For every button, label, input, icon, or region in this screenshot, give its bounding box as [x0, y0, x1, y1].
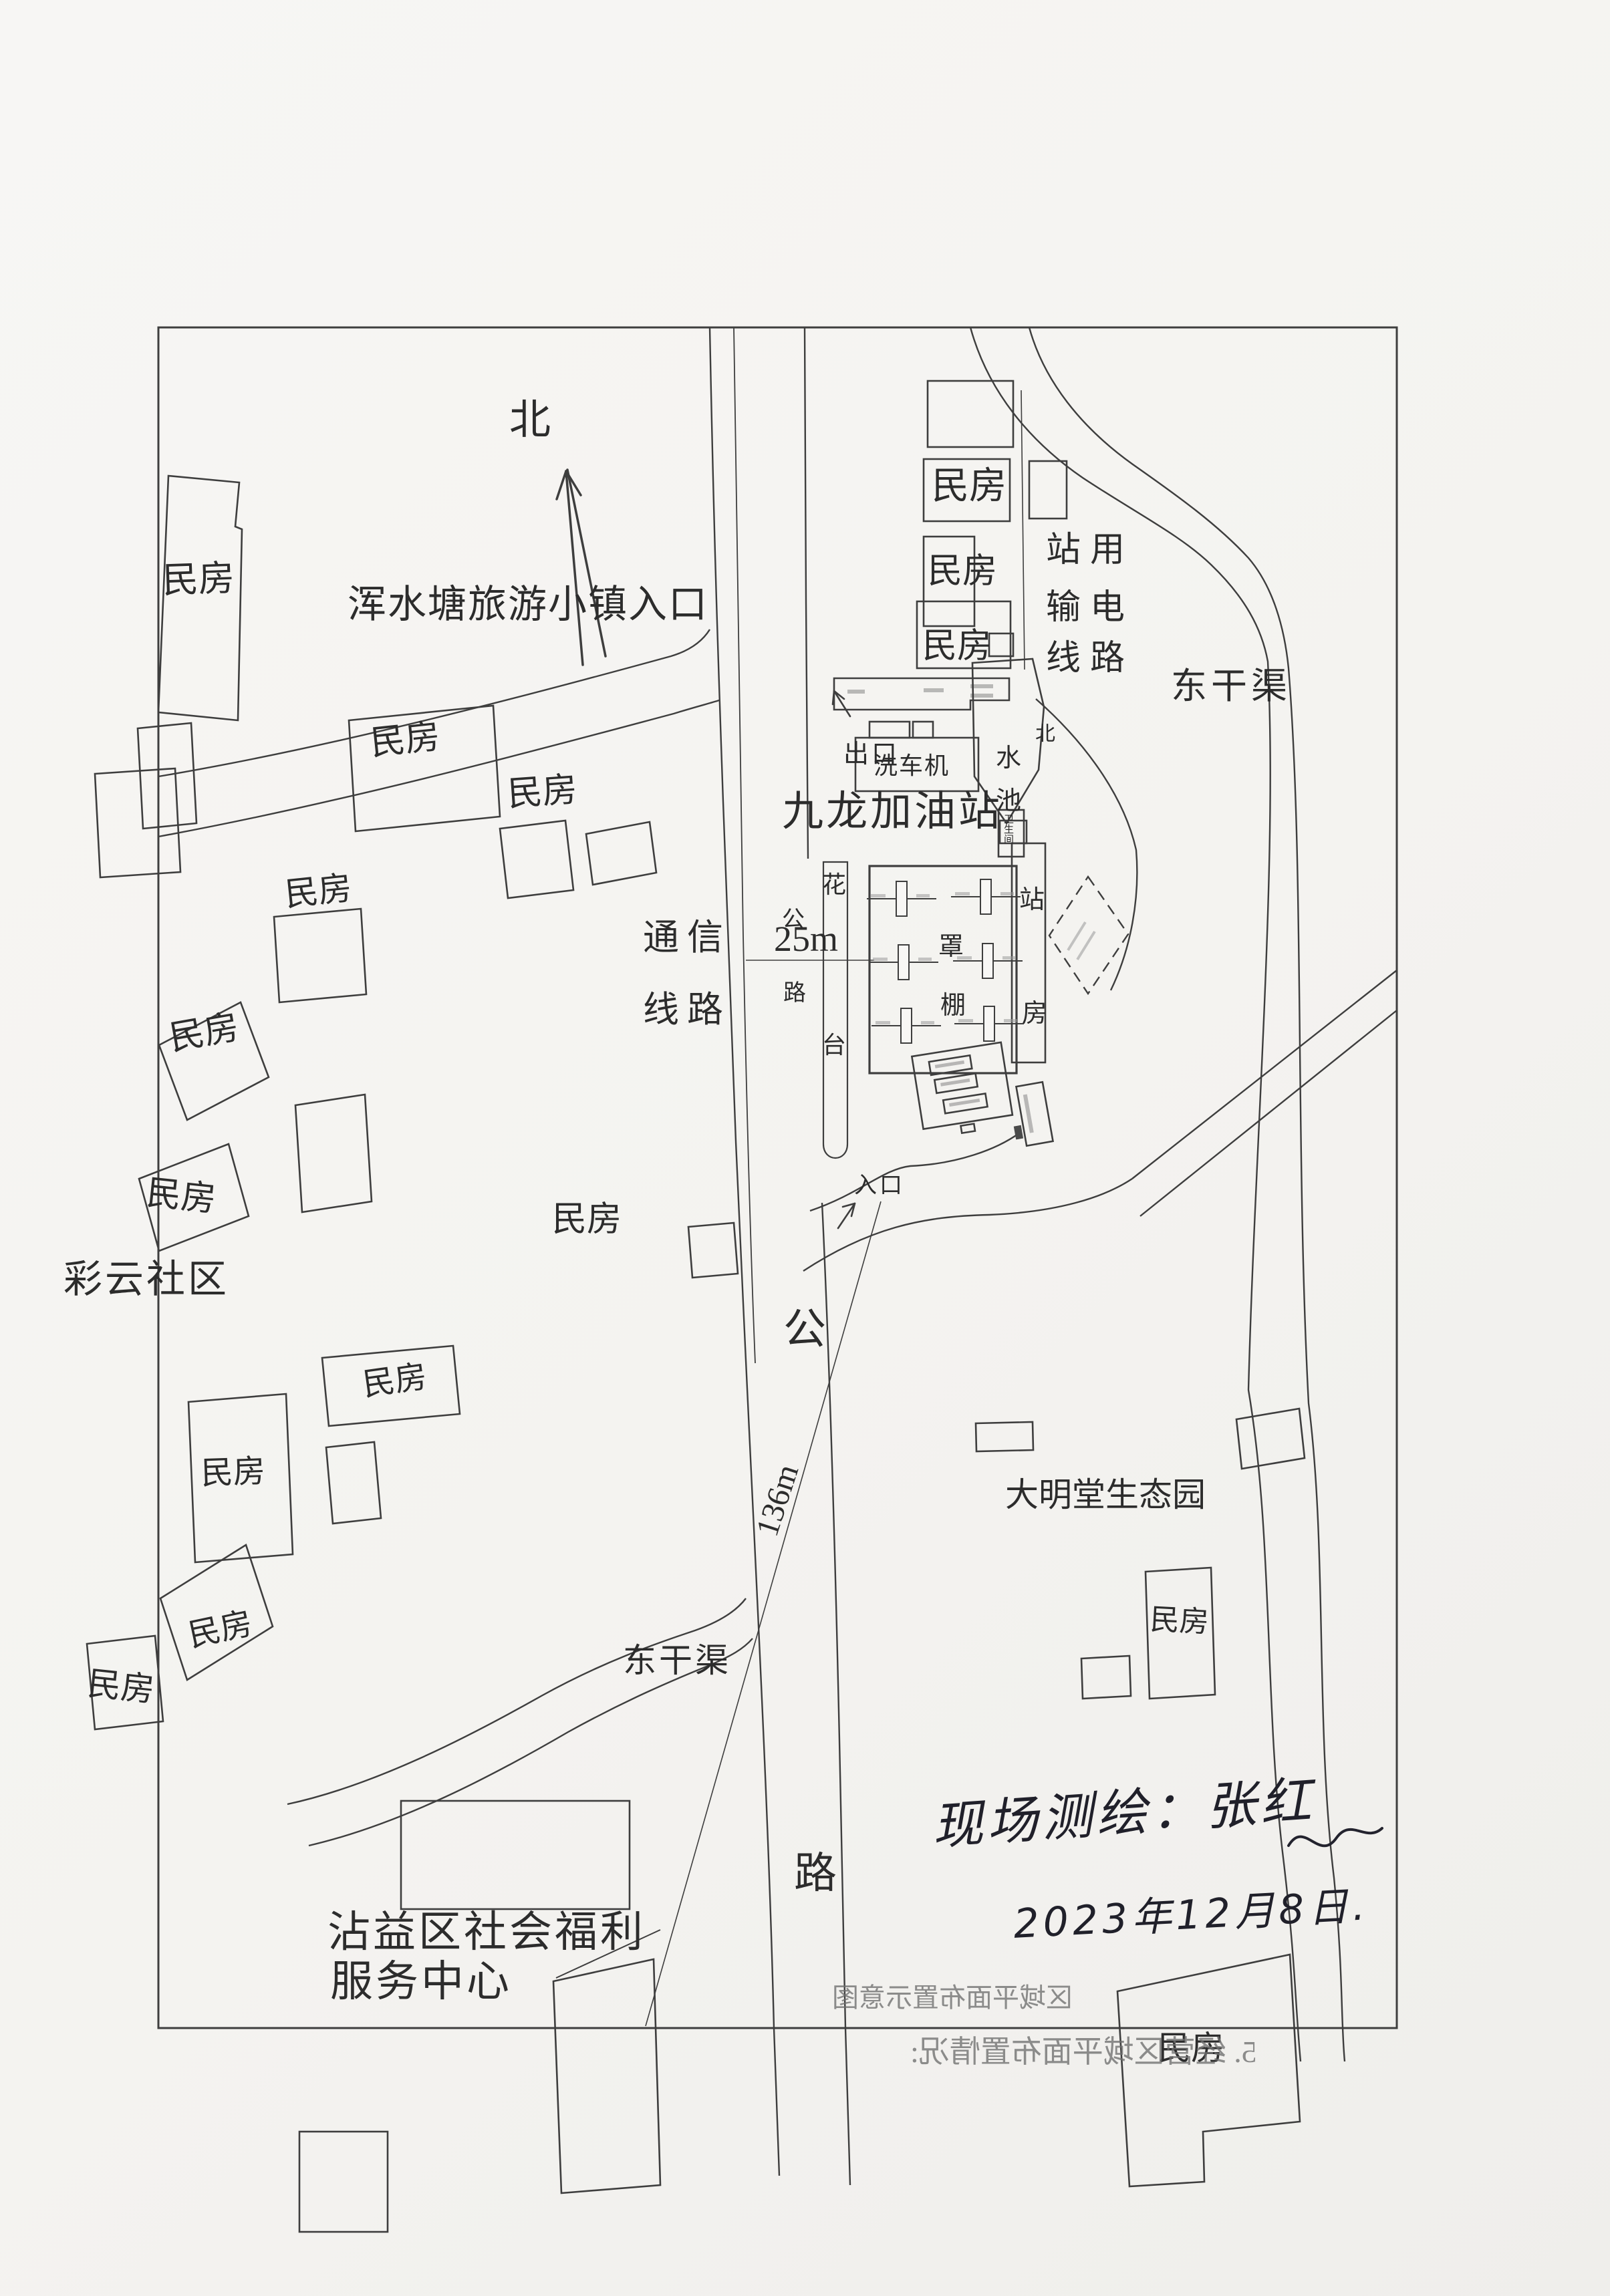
toilet-label: 卫生间 — [1002, 814, 1013, 844]
comm-line-label-2: 线路 — [643, 992, 731, 1028]
site-plan-drawing — [0, 0, 1610, 2296]
handwriting-squiggle — [1289, 1828, 1382, 1846]
station-access-upper — [810, 1133, 1020, 1211]
building-minfang-c — [500, 821, 573, 898]
pool-char-2: 池 — [996, 788, 1021, 814]
building-empty-1 — [586, 822, 656, 885]
station-power-line-1: 站用 — [1046, 533, 1134, 568]
entrance-arrow — [838, 1203, 855, 1228]
minfang-c: 民房 — [507, 773, 578, 813]
building-col-empty — [928, 381, 1013, 447]
bleedthrough-heading: 5. 经营区域平面布置情况: — [910, 2037, 1257, 2067]
minfang-n: 民房 — [1150, 1605, 1210, 1638]
caiyun-community-label: 彩云社区 — [63, 1260, 229, 1299]
road-char-big-2: 路 — [794, 1852, 837, 1895]
main-road-right-edge-top — [805, 327, 808, 859]
east-canal-top-label: 东干渠 — [1171, 668, 1291, 704]
minfang-h: 民房 — [552, 1203, 622, 1238]
minfang-col-2: 民房 — [928, 555, 997, 589]
tank-vent-box — [961, 1124, 975, 1133]
flowerbed-char-2: 台 — [822, 1033, 846, 1057]
building-tiny-square — [1081, 1656, 1131, 1699]
dispenser — [867, 881, 936, 916]
minfang-b: 民房 — [369, 720, 442, 762]
entrance-label: 入口 — [854, 1175, 905, 1197]
building-bottom-right — [1117, 1955, 1300, 2186]
north-label: 北 — [509, 400, 551, 441]
exit-arrow — [833, 691, 850, 716]
carwash-roof-box-1 — [869, 722, 910, 738]
southwest-canal-line-1 — [287, 1598, 746, 1804]
main-road-left-edge — [710, 327, 779, 2176]
welfare-center-line-2: 服务中心 — [330, 1961, 512, 2003]
town-road-lower — [158, 700, 719, 837]
station-power-line-2: 输电 — [1046, 591, 1134, 625]
flower-bed-median — [823, 862, 847, 1158]
service-building-small-text-marks — [847, 684, 993, 698]
canopy-char-1: 罩 — [938, 934, 964, 960]
station-fence — [1021, 390, 1025, 670]
town-entrance-label: 浑水塘旅游小镇入口 — [348, 585, 708, 624]
tank-pit-outline — [912, 1042, 1013, 1129]
comm-line-label-1: 通信 — [643, 919, 731, 956]
road-char-big-1: 公 — [783, 1308, 826, 1351]
station-house-char-1: 站 — [1019, 887, 1045, 913]
minfang-g: 民房 — [145, 1176, 218, 1218]
building-col-small-b — [989, 633, 1013, 656]
carwash-roof-box-2 — [913, 722, 933, 738]
minfang-col-1: 民房 — [932, 468, 1007, 505]
minfang-d: 民房 — [283, 871, 354, 911]
building-minfang-d — [274, 909, 366, 1002]
dispenser — [871, 1008, 941, 1043]
building-empty-2 — [295, 1095, 372, 1212]
oil-tank-area — [912, 1042, 1014, 1139]
main-road-right-edge-bottom — [822, 1203, 850, 2185]
building-minfang-h — [688, 1223, 738, 1278]
station-house-char-2: 房 — [1022, 1001, 1047, 1026]
dispenser — [951, 879, 1021, 914]
flowerbed-char-1: 花 — [822, 873, 846, 897]
dispenser — [869, 945, 938, 980]
unloading-point — [1014, 1125, 1023, 1140]
east-canal-bottom-label: 东干渠 — [623, 1644, 731, 1677]
road-char-small-2: 路 — [783, 982, 806, 1005]
scanned-site-plan-page: 北民房浑水塘旅游小镇入口民房民房民房站用输电线路东干渠出口洗车机九龙加油站北水池… — [0, 0, 1610, 2296]
building-east-strip-quad — [1236, 1409, 1305, 1469]
north-small-label: 北 — [1035, 724, 1055, 744]
minfang-i: 民房 — [200, 1456, 266, 1490]
damingtang-label: 大明堂生态园 — [1005, 1478, 1206, 1512]
north-arrow — [557, 470, 606, 665]
welfare-center-line-1: 沾益区社会福利 — [327, 1911, 646, 1954]
disused-area-text-marks — [1068, 922, 1095, 960]
pool-char-1: 水 — [996, 746, 1021, 771]
bleedthrough-caption: 区域平面布置示意图 — [832, 1985, 1073, 2011]
minfang-l: 民房 — [86, 1667, 156, 1707]
building-welfare-rect — [401, 1801, 630, 1909]
building-frame-edge-west — [95, 768, 180, 877]
building-flat-damingtang — [976, 1422, 1033, 1451]
building-small-j2 — [326, 1442, 381, 1524]
minfang-col-3: 民房 — [922, 629, 992, 664]
gas-station-name: 九龙加油站 — [782, 791, 1002, 833]
building-bottom-tall — [553, 1959, 660, 2193]
dim-25m: 25m — [774, 921, 838, 957]
building-col-small-a — [1029, 461, 1067, 519]
communication-line — [734, 327, 755, 1363]
canopy-char-2: 棚 — [940, 993, 966, 1018]
building-bottom-small-square — [299, 2132, 388, 2232]
station-power-line-3: 线路 — [1046, 641, 1134, 676]
dim-136m-line — [646, 1201, 881, 2026]
carwash-label: 洗车机 — [874, 754, 950, 778]
minfang-topleft: 民房 — [162, 560, 235, 599]
map-frame-border — [158, 327, 1397, 2028]
east-road-lower — [1140, 1010, 1397, 1216]
